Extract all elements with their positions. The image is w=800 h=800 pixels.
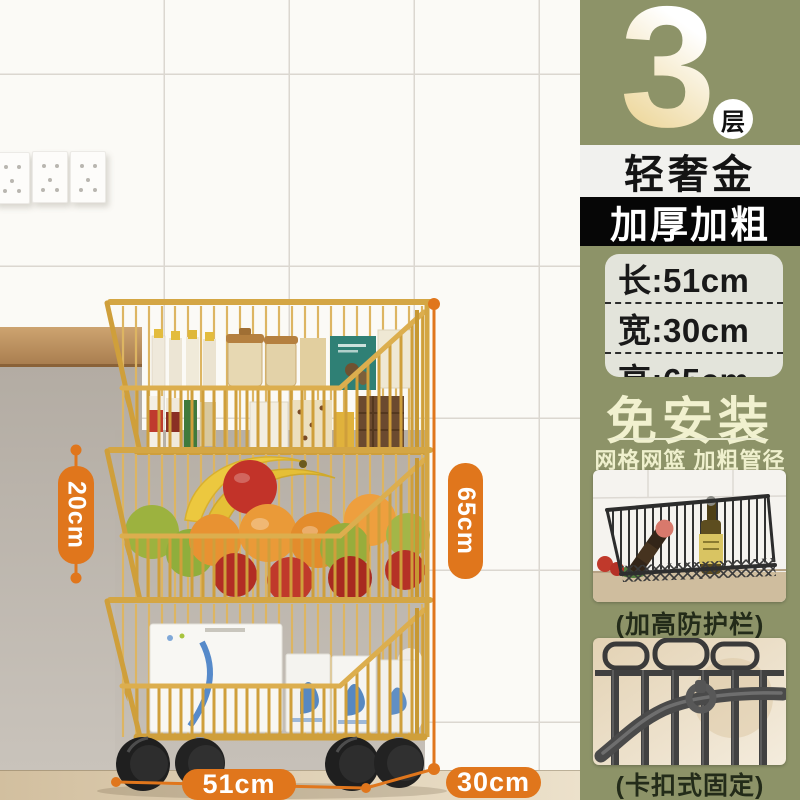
photo-caption-snap-buckle: (卡扣式固定) <box>580 766 800 800</box>
storage-cart-photo <box>0 0 580 800</box>
color-name-band: 轻奢金 <box>580 145 800 197</box>
tier-1-basket <box>107 302 430 452</box>
product-listing-image: 20cm 65cm 51cm 30cm 3 层 轻奢金 加厚加粗 长:51cm … <box>0 0 800 800</box>
size-row-width: 宽:30cm <box>605 304 783 354</box>
tier-3-basket <box>107 600 430 737</box>
tier-height-dimension-label: 20cm <box>58 466 94 564</box>
detail-photo-guard-rail <box>593 470 786 602</box>
info-panel: 3 层 轻奢金 加厚加粗 长:51cm 宽:30cm 高:65cm 免安装 网格… <box>580 0 800 800</box>
photo-caption-guard-rail: (加高防护栏) <box>580 605 800 641</box>
length-dimension-label: 51cm <box>182 769 296 800</box>
total-height-dimension-label: 65cm <box>448 463 483 579</box>
tier-count: 3 <box>620 0 716 142</box>
depth-dimension-label: 30cm <box>446 767 541 798</box>
size-row-length: 长:51cm <box>605 254 783 304</box>
tier-2-basket <box>107 450 430 603</box>
kitchen-scene: 20cm 65cm 51cm 30cm <box>0 0 580 800</box>
size-row-height: 高:65cm <box>605 354 783 377</box>
headline-divider <box>615 438 765 440</box>
tier-unit-badge: 层 <box>713 99 753 139</box>
detail-photo-snap-buckle <box>593 638 786 765</box>
feature-band: 加厚加粗 <box>580 197 800 246</box>
size-spec-box: 长:51cm 宽:30cm 高:65cm <box>605 254 783 377</box>
